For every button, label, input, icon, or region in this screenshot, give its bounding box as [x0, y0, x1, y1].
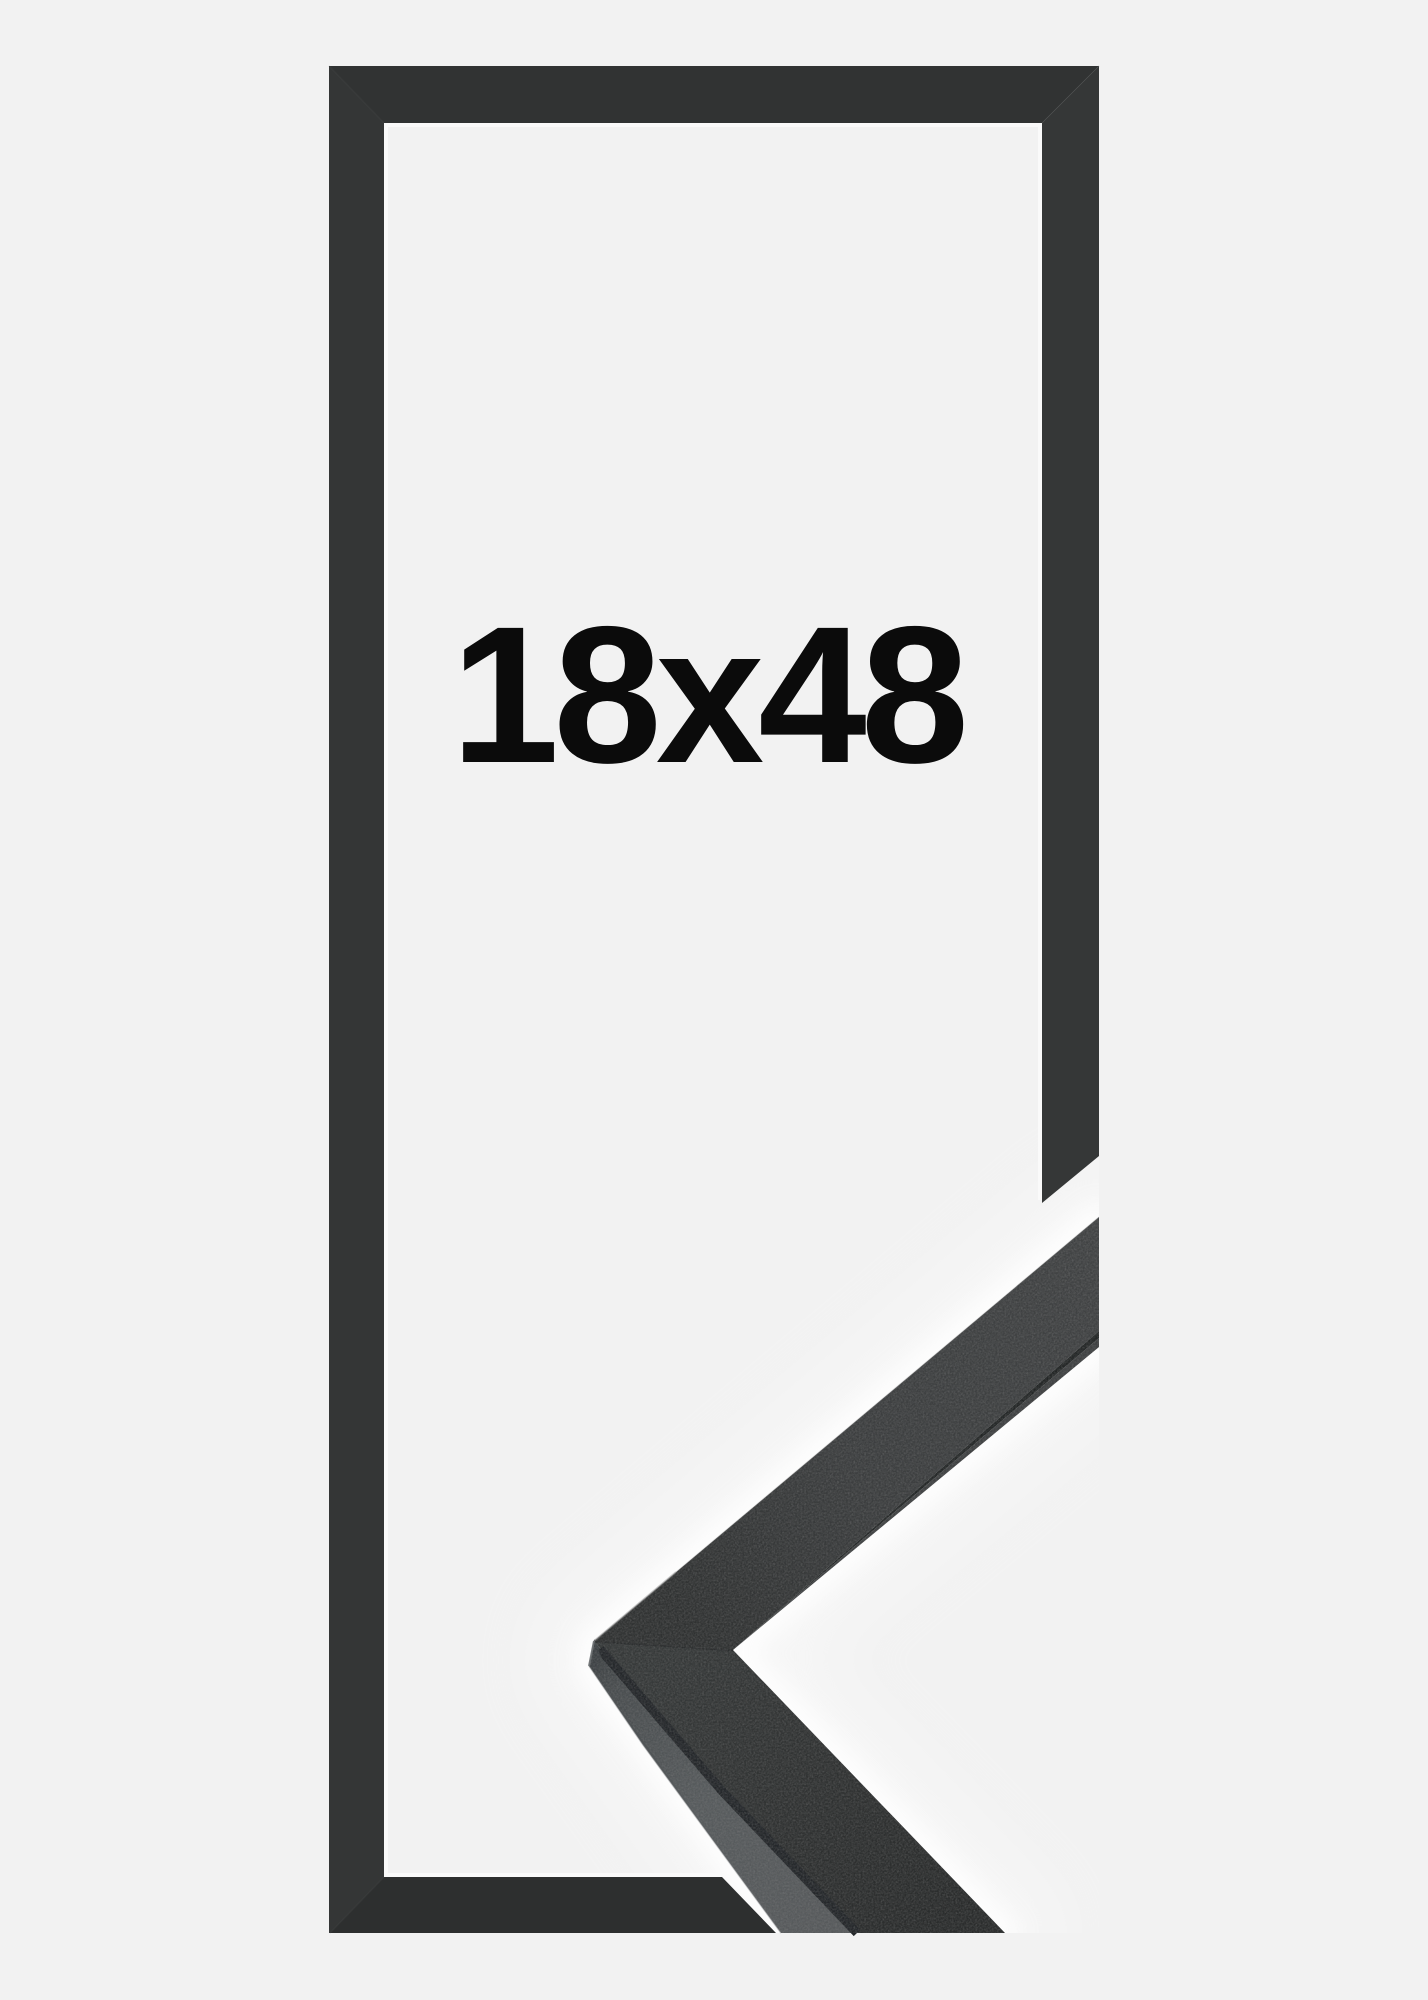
- svg-text:18x48: 18x48: [451, 586, 964, 804]
